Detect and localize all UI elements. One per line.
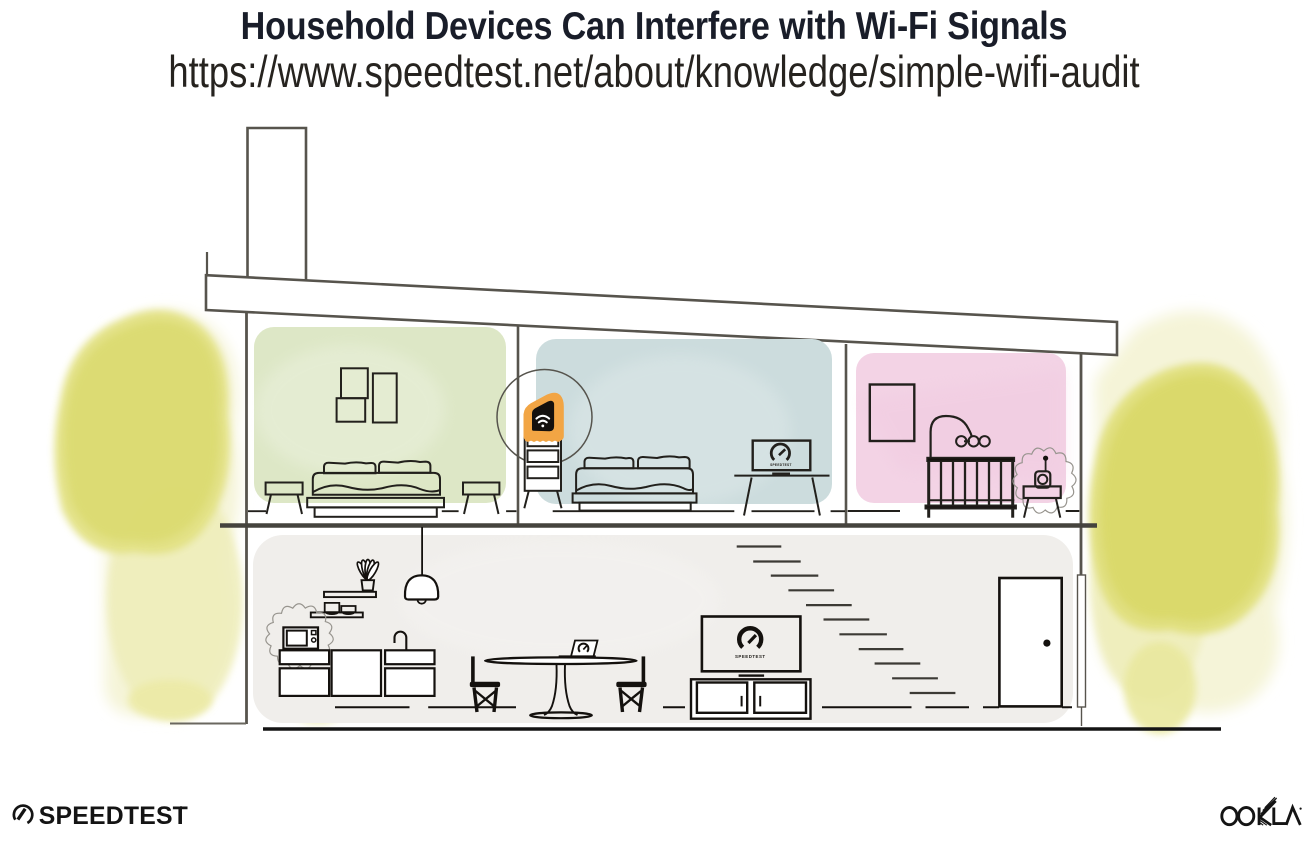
svg-text:SPEEDTEST: SPEEDTEST	[39, 803, 188, 830]
svg-text:SPEEDTEST: SPEEDTEST	[735, 654, 766, 659]
svg-text:SPEEDTEST: SPEEDTEST	[770, 463, 792, 467]
